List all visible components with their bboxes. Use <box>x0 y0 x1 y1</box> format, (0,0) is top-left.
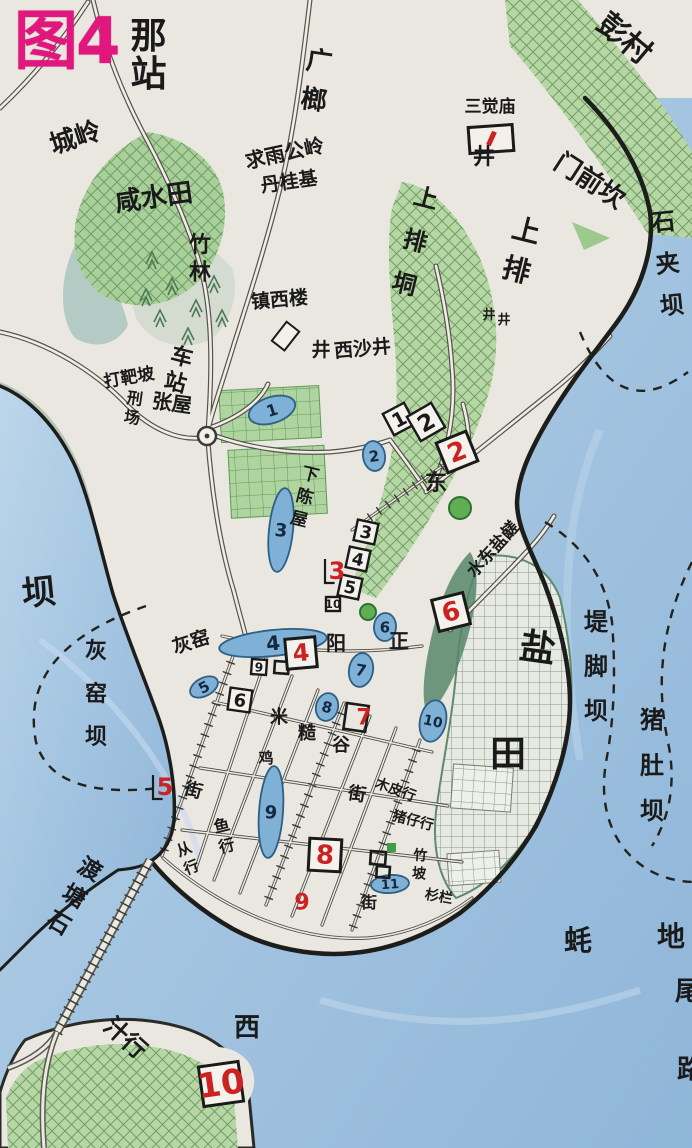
map-label: 蚝 <box>564 924 592 957</box>
svg-text:西: 西 <box>234 1013 260 1043</box>
red-site: 4 <box>285 637 318 670</box>
map-label: 街 <box>360 893 377 912</box>
map-label: 猪肚坝 <box>640 706 664 825</box>
red-site: 7 <box>356 705 371 730</box>
pond-number: 11 <box>381 877 400 893</box>
map-label: 盐 <box>517 626 558 672</box>
svg-text:盐: 盐 <box>517 626 558 672</box>
map-label: 东 <box>425 470 447 496</box>
red-site: 8 <box>308 838 342 872</box>
well-icon: 井 <box>497 312 510 328</box>
site-number: 10 <box>325 597 341 611</box>
map-label: 坝 <box>20 571 58 614</box>
svg-text:尾: 尾 <box>675 977 692 1007</box>
svg-text:正: 正 <box>389 629 409 653</box>
map-label: 正 <box>389 629 409 653</box>
svg-text:鸡: 鸡 <box>257 749 273 767</box>
map-label: 西 <box>234 1013 260 1043</box>
pond-number: 3 <box>274 520 289 542</box>
svg-text:阳: 阳 <box>326 631 346 655</box>
map-label: 鸡 <box>257 749 273 767</box>
site-box: 10 <box>325 597 341 611</box>
map-label: 三觉庙 <box>465 96 516 117</box>
map-label: 灰窑坝 <box>85 638 107 750</box>
red-site: 9 <box>294 890 309 915</box>
svg-text:街: 街 <box>345 782 368 807</box>
svg-text:坝: 坝 <box>20 571 58 614</box>
site-box: 3 <box>353 520 378 546</box>
svg-text:路: 路 <box>677 1054 692 1085</box>
red-site-number: 7 <box>356 705 371 730</box>
site-box: 6 <box>227 688 252 713</box>
svg-text:米: 米 <box>270 706 289 728</box>
red-site-number: 10 <box>195 1061 247 1107</box>
red-site: 3 <box>325 557 345 585</box>
svg-text:灰窑坝: 灰窑坝 <box>85 638 107 750</box>
map-label: 尾 <box>675 977 692 1007</box>
green-plot-icon <box>387 843 396 852</box>
red-site-number: 3 <box>329 557 346 585</box>
well-icon: 井 <box>311 339 330 361</box>
tree-icon <box>360 604 376 620</box>
site-box: 4 <box>345 547 370 573</box>
svg-text:街: 街 <box>360 893 377 912</box>
svg-text:堤脚坝: 堤脚坝 <box>584 608 609 725</box>
map-label: 糙 <box>298 722 316 744</box>
svg-text:谷: 谷 <box>332 735 351 756</box>
red-site-number: 9 <box>294 890 309 915</box>
map-label: 田 <box>490 734 526 775</box>
site-number: 9 <box>254 660 264 675</box>
hand-drawn-map: 1234567891011 123459610 2345678910 井井井井 … <box>0 0 692 1148</box>
map-label: 路 <box>677 1054 692 1085</box>
map-label: 谷 <box>332 735 351 756</box>
svg-text:蚝: 蚝 <box>564 924 592 957</box>
red-site: 10 <box>195 1061 247 1107</box>
red-site: 5 <box>153 773 173 801</box>
well-icon: 井 <box>473 145 495 170</box>
svg-text:猪肚坝: 猪肚坝 <box>640 706 664 825</box>
map-label: 米 <box>270 706 289 728</box>
tree-icon <box>449 497 471 519</box>
map-label: 街 <box>345 782 368 807</box>
roundabout-icon <box>198 427 216 445</box>
map-label: 堤脚坝 <box>584 608 609 725</box>
hand-drawn-map-page: 1234567891011 123459610 2345678910 井井井井 … <box>0 0 692 1148</box>
svg-text:糙: 糙 <box>298 722 316 744</box>
pond-number: 4 <box>265 631 281 656</box>
well-icon: 井 <box>482 307 495 323</box>
svg-text:东: 东 <box>425 470 447 496</box>
red-site-number: 5 <box>157 773 174 801</box>
svg-text:三觉庙: 三觉庙 <box>465 96 516 117</box>
pond-number: 9 <box>264 802 278 824</box>
svg-text:地: 地 <box>657 920 685 953</box>
map-label: 阳 <box>326 631 346 655</box>
red-site-number: 8 <box>315 840 335 871</box>
red-site: 6 <box>432 593 471 632</box>
map-label: 地 <box>657 920 685 953</box>
red-site-number: 4 <box>291 638 310 667</box>
site-box: 9 <box>251 659 267 675</box>
svg-text:田: 田 <box>490 734 526 775</box>
